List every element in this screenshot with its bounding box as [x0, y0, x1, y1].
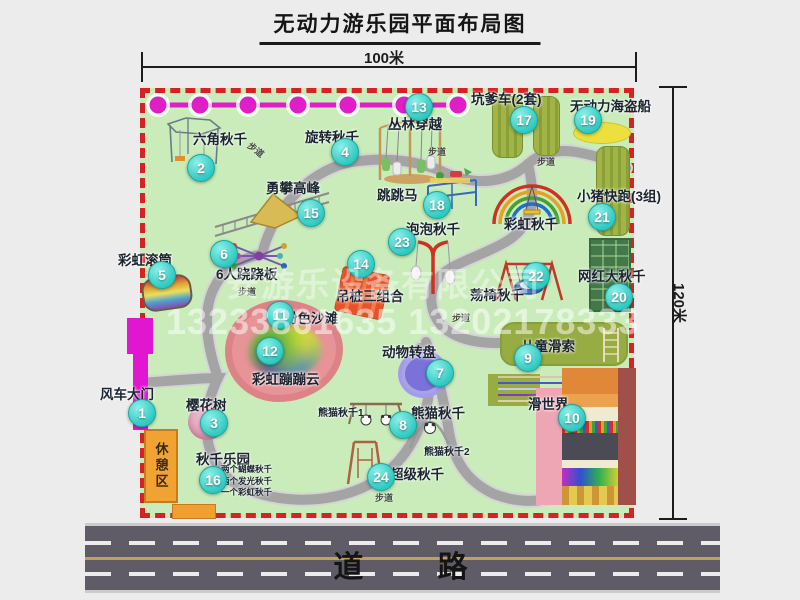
label-piggy-run: 小猪快跑(3组) — [577, 185, 661, 205]
label-panda-swing-1: 熊猫秋千1 — [318, 404, 364, 419]
label-rocking-chair-swing: 荡椅秋千 — [470, 284, 524, 304]
swing-park-item: 一个彩虹秋千 — [221, 487, 272, 499]
path-label: 步道 — [537, 155, 555, 168]
marker-20: 20 — [605, 283, 633, 311]
marker-5: 5 — [148, 261, 176, 289]
label-panda-swing: 熊猫秋千 — [411, 402, 465, 422]
slide-band-cream2 — [562, 460, 618, 468]
path-label: 步道 — [428, 145, 446, 158]
marker-7: 7 — [426, 359, 454, 387]
marker-3: 3 — [200, 409, 228, 437]
label-hexagon-swing: 六角秋千 — [193, 128, 247, 148]
dim-tick-right-top — [659, 86, 687, 88]
path-label: 步道 — [452, 311, 470, 324]
marker-21: 21 — [588, 203, 616, 231]
marker-17: 17 — [510, 106, 538, 134]
slide-world-complex — [488, 368, 638, 507]
marker-19: 19 — [574, 106, 602, 134]
label-rainbow-bounce-cloud: 彩虹蹦蹦云 — [252, 368, 320, 388]
park-plan-canvas: 无动力游乐园平面布局图 100米 120米 — [0, 0, 800, 600]
dim-tick-top-left — [141, 52, 143, 82]
marker-11: 11 — [266, 301, 294, 329]
road-label: 道 路 — [85, 542, 720, 586]
slide-band-rainbow — [562, 468, 618, 486]
path-label: 步道 — [238, 285, 256, 298]
marker-12: 12 — [256, 337, 284, 365]
marker-10: 10 — [558, 404, 586, 432]
marker-9: 9 — [514, 344, 542, 372]
label-hanging-post-combo: 吊桩三组合 — [336, 285, 404, 305]
marker-13: 13 — [405, 93, 433, 121]
dim-tick-top-right — [635, 52, 637, 82]
marker-8: 8 — [389, 411, 417, 439]
marker-23: 23 — [388, 228, 416, 256]
marker-2: 2 — [187, 154, 215, 182]
marker-1: 1 — [128, 399, 156, 427]
label-jumping-horse: 跳跳马 — [377, 184, 418, 204]
swing-park-item: 两个蝴蝶秋千 — [221, 464, 272, 476]
marker-22: 22 — [522, 262, 550, 290]
marker-24: 24 — [367, 463, 395, 491]
marker-16: 16 — [199, 466, 227, 494]
label-peak-climbing: 勇攀高峰 — [266, 177, 320, 197]
label-animal-carousel: 动物转盘 — [382, 341, 436, 361]
rest-area-box: 休憩区 — [144, 429, 178, 503]
label-viral-big-swing: 网红大秋千 — [578, 265, 646, 285]
swing-park-item: 两个发光秋千 — [221, 476, 272, 488]
label-rainbow-swing: 彩虹秋千 — [504, 213, 558, 233]
marker-6: 6 — [210, 240, 238, 268]
road: 道 路 — [85, 523, 720, 593]
path-label: 步道 — [375, 491, 393, 504]
rest-area-label: 休憩区 — [152, 442, 171, 490]
page-title: 无动力游乐园平面布局图 — [260, 8, 541, 45]
marker-18: 18 — [423, 191, 451, 219]
marker-4: 4 — [331, 138, 359, 166]
dim-label-width: 100米 — [364, 47, 404, 68]
label-panda-swing-2: 熊猫秋千2 — [424, 443, 470, 458]
windmill-gate-top — [127, 318, 153, 354]
dim-tick-right-bottom — [659, 518, 687, 520]
zipline-tower-sketch — [598, 326, 624, 364]
swing-park-item-list: 两个蝴蝶秋千 两个发光秋千 一个彩虹秋千 — [221, 464, 272, 499]
slide-band-orange — [562, 368, 618, 394]
label-kengdie-car: 坑爹车(2套) — [471, 88, 542, 108]
slide-band-dark — [562, 433, 618, 460]
label-super-swing: 超级秋千 — [390, 463, 444, 483]
orange-kiosk — [172, 504, 216, 519]
slide-band-wave — [562, 486, 618, 505]
slide-maroon-column — [618, 368, 636, 505]
marker-14: 14 — [347, 250, 375, 278]
dim-label-height: 120米 — [669, 283, 690, 323]
marker-15: 15 — [297, 199, 325, 227]
